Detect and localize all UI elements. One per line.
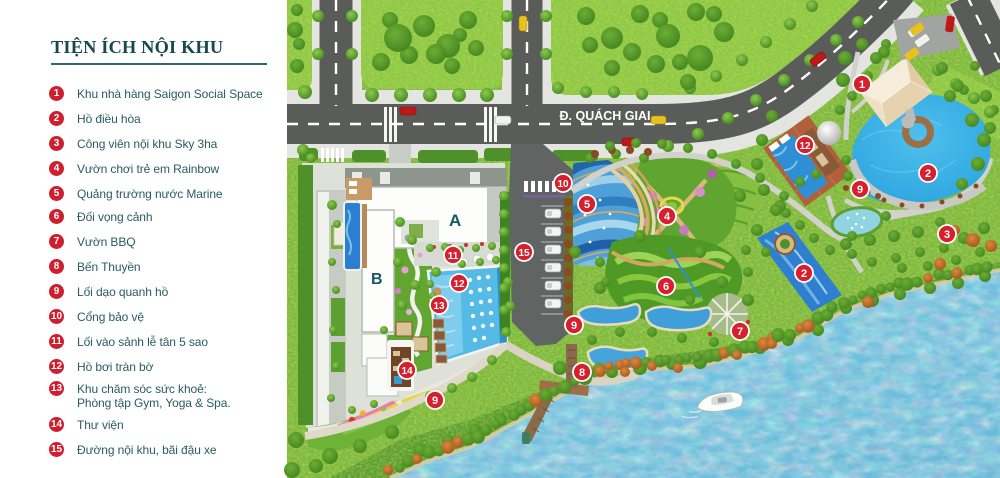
svg-text:12: 12	[453, 279, 465, 290]
svg-text:9: 9	[432, 395, 438, 407]
svg-text:13: 13	[433, 301, 445, 312]
svg-text:A: A	[449, 211, 461, 230]
svg-text:14: 14	[401, 366, 413, 377]
svg-text:4: 4	[664, 211, 671, 223]
svg-text:6: 6	[663, 281, 669, 293]
svg-text:15: 15	[518, 248, 530, 259]
svg-text:9: 9	[857, 184, 863, 196]
svg-text:B: B	[371, 271, 383, 288]
svg-text:5: 5	[584, 199, 590, 211]
svg-text:3: 3	[944, 229, 950, 241]
svg-text:Đ. QUÁCH GIAI: Đ. QUÁCH GIAI	[560, 108, 651, 123]
svg-text:8: 8	[579, 367, 585, 379]
svg-text:2: 2	[801, 268, 807, 280]
svg-text:2: 2	[925, 168, 931, 180]
svg-text:9: 9	[571, 320, 577, 332]
svg-text:10: 10	[557, 179, 569, 190]
svg-text:12: 12	[799, 141, 811, 152]
svg-text:1: 1	[859, 79, 865, 91]
svg-text:11: 11	[448, 251, 459, 262]
svg-text:7: 7	[737, 326, 743, 338]
